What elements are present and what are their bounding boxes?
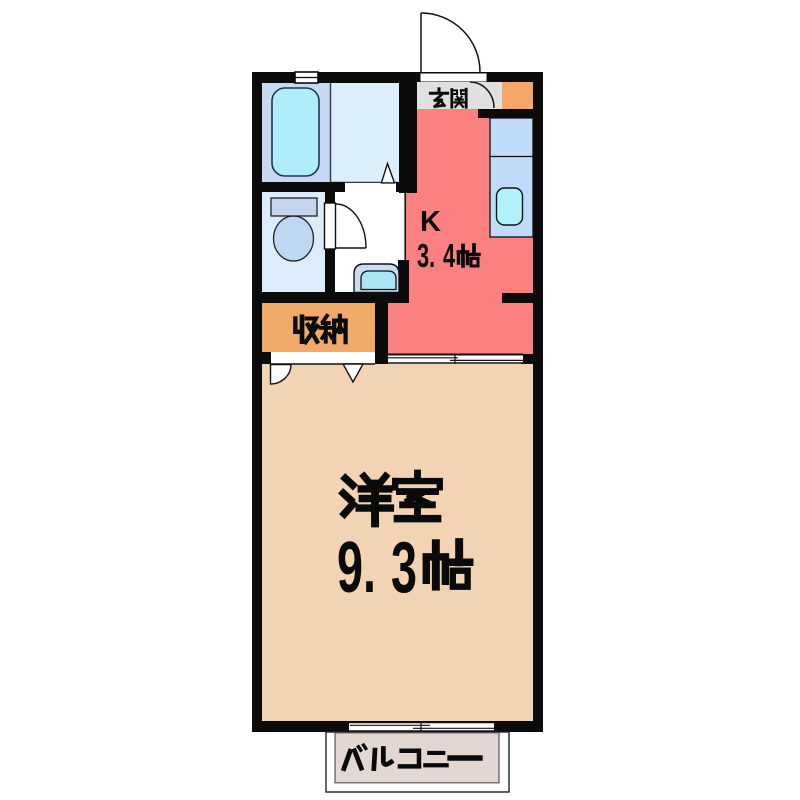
svg-text:3.: 3. (417, 237, 435, 274)
svg-text:9.: 9. (337, 527, 376, 608)
svg-text:4: 4 (443, 237, 455, 274)
svg-text:3: 3 (391, 527, 417, 608)
svg-text:K: K (420, 206, 441, 238)
